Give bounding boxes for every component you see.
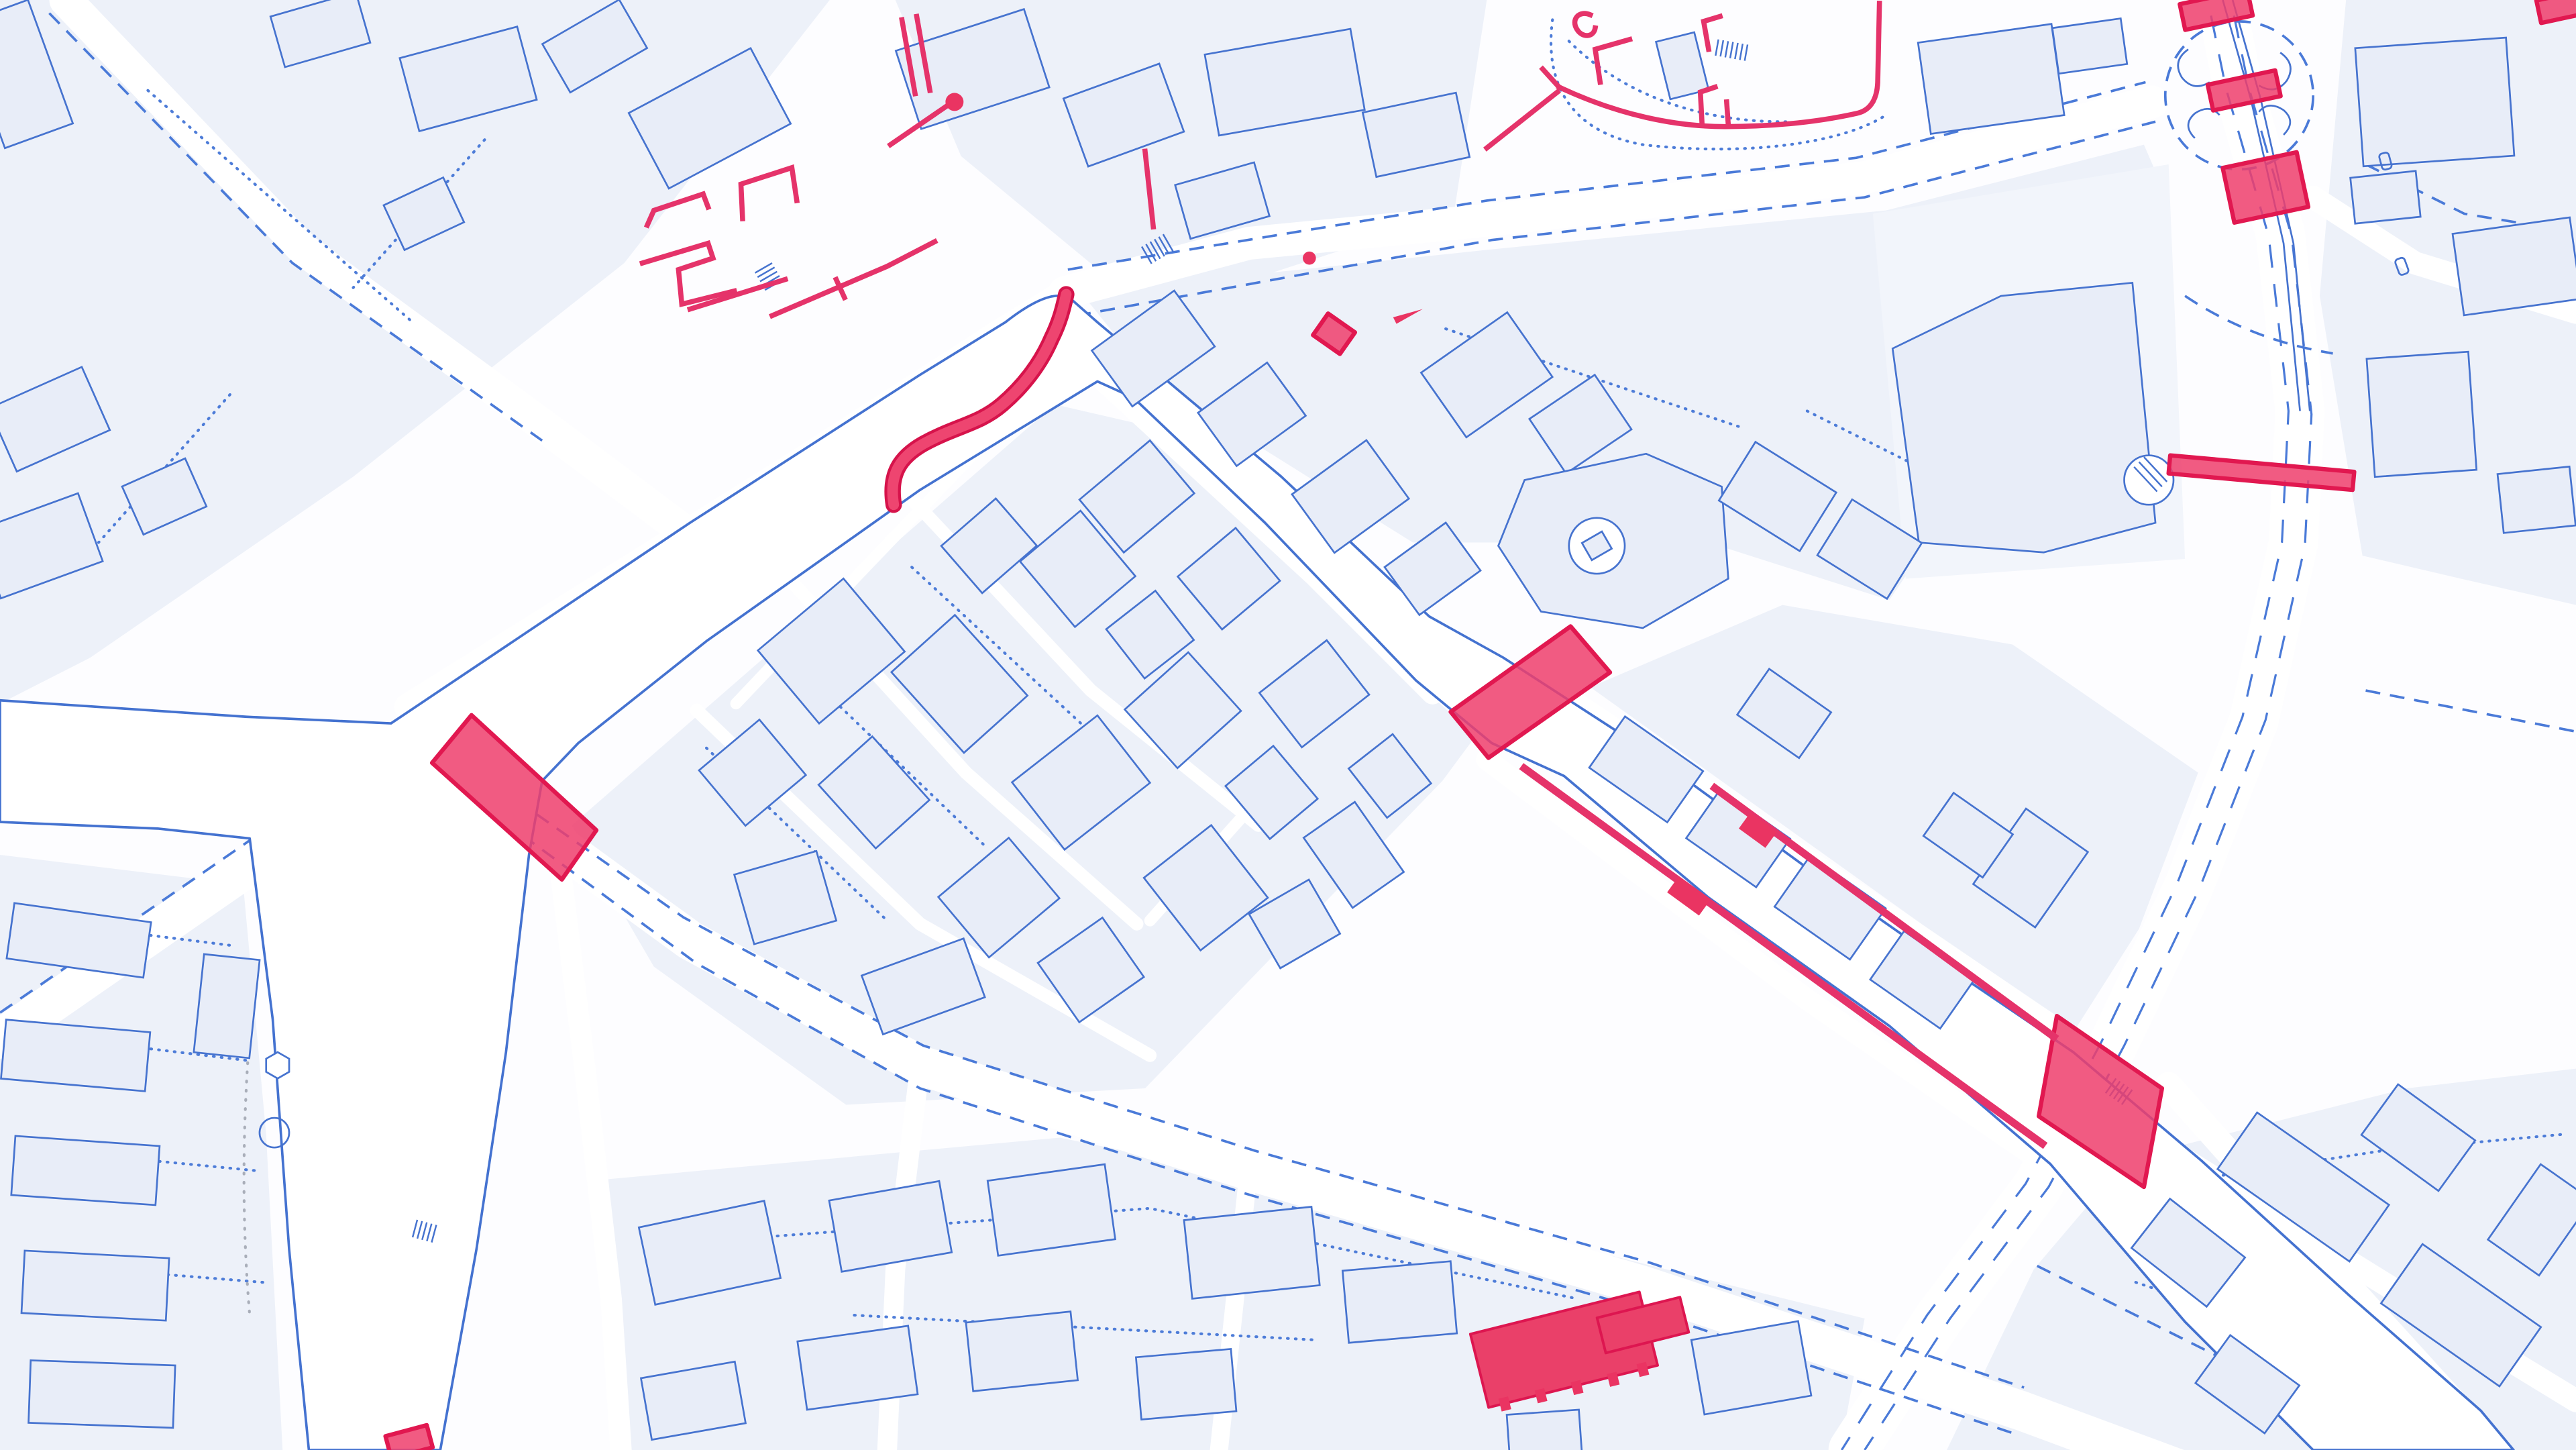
stairs-icon: [1715, 40, 1748, 61]
map-canvas[interactable]: Curved weir crossing West river bridge C…: [0, 0, 2576, 1450]
highlight-footbridge[interactable]: Footbridge over carriageway: [2169, 456, 2355, 490]
city-map-svg[interactable]: Curved weir crossing West river bridge C…: [0, 0, 2576, 1450]
spiral-ramp: [2125, 456, 2173, 505]
monument-hexagon: [266, 1052, 289, 1078]
